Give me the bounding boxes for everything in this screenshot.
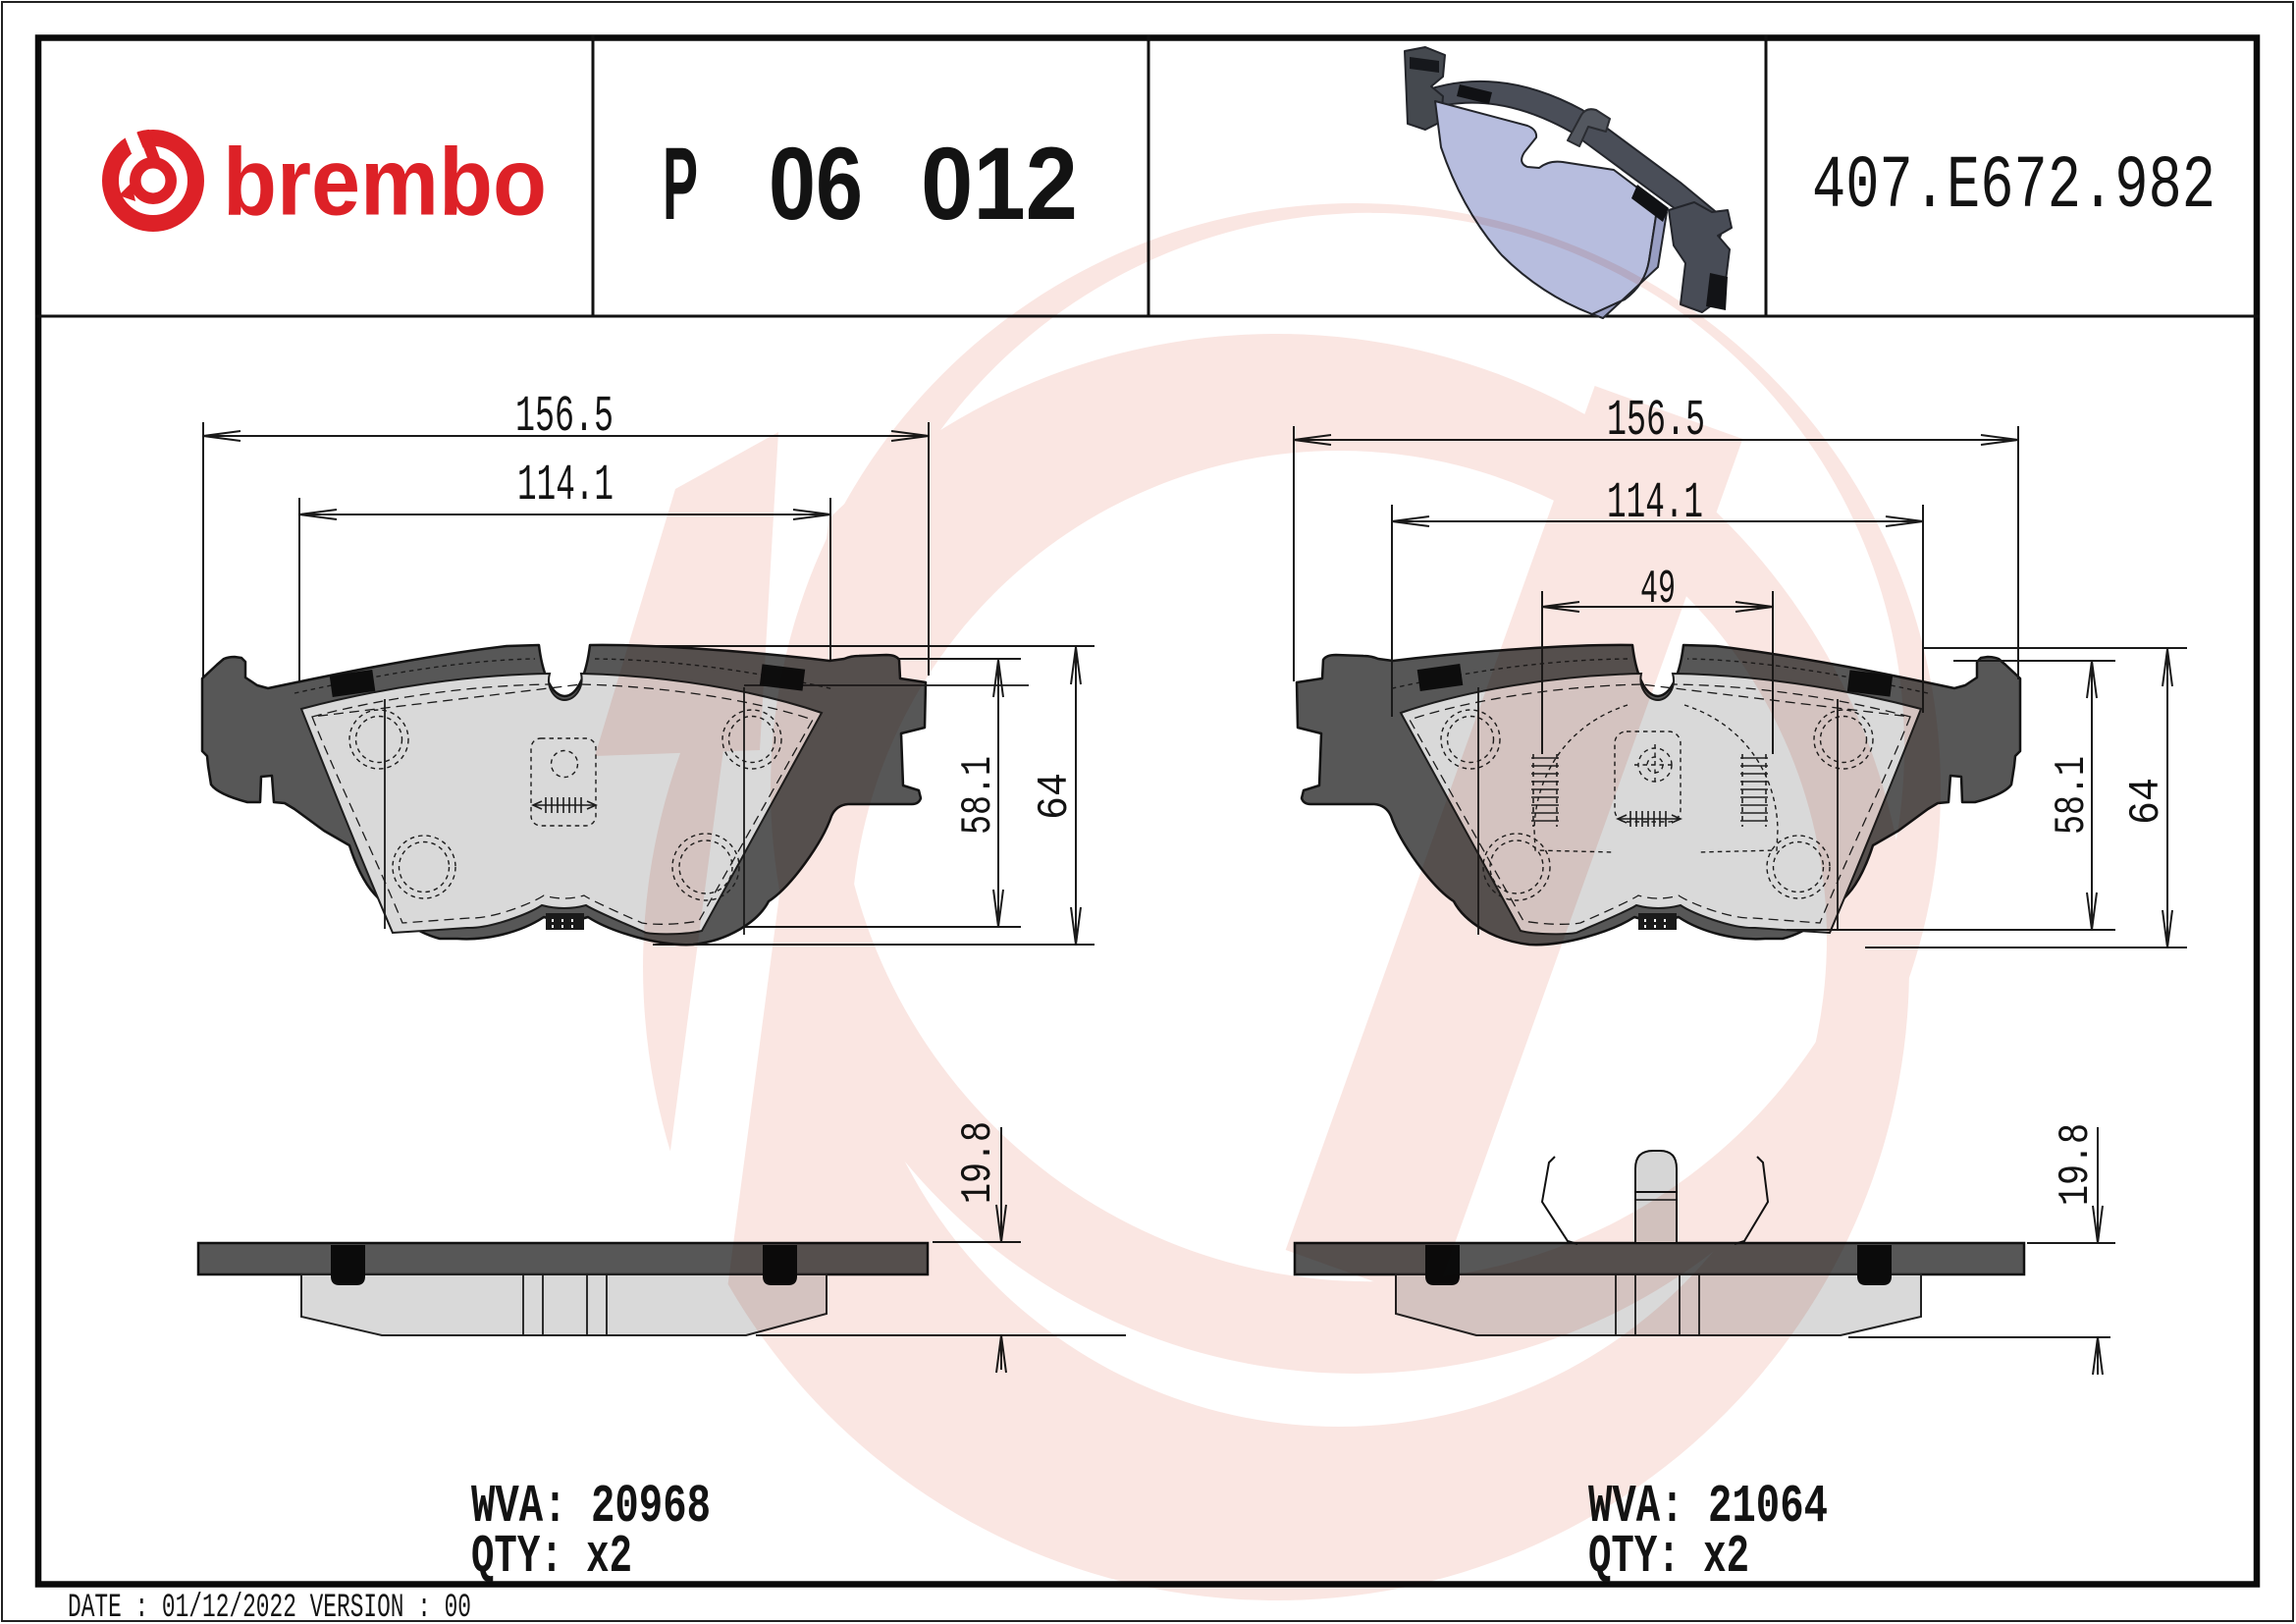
svg-text:DATE : 01/12/2022 VERSION : 00: DATE : 01/12/2022 VERSION : 00 bbox=[68, 1590, 471, 1624]
svg-text:P: P bbox=[663, 127, 698, 242]
svg-text:QTY: x2: QTY: x2 bbox=[471, 1526, 632, 1588]
svg-text:64: 64 bbox=[1031, 773, 1080, 820]
svg-text:114.1: 114.1 bbox=[517, 457, 614, 514]
svg-text:QTY: x2: QTY: x2 bbox=[1588, 1526, 1749, 1588]
svg-text:06: 06 bbox=[769, 127, 863, 242]
svg-text:19.8: 19.8 bbox=[2052, 1123, 2101, 1206]
svg-text:brembo: brembo bbox=[223, 129, 547, 236]
svg-text:64: 64 bbox=[2122, 778, 2171, 825]
svg-text:012: 012 bbox=[921, 127, 1078, 242]
svg-text:58.1: 58.1 bbox=[2048, 756, 2097, 835]
svg-text:58.1: 58.1 bbox=[954, 756, 1003, 835]
svg-text:156.5: 156.5 bbox=[515, 388, 614, 446]
svg-text:407.E672.982: 407.E672.982 bbox=[1812, 144, 2216, 229]
